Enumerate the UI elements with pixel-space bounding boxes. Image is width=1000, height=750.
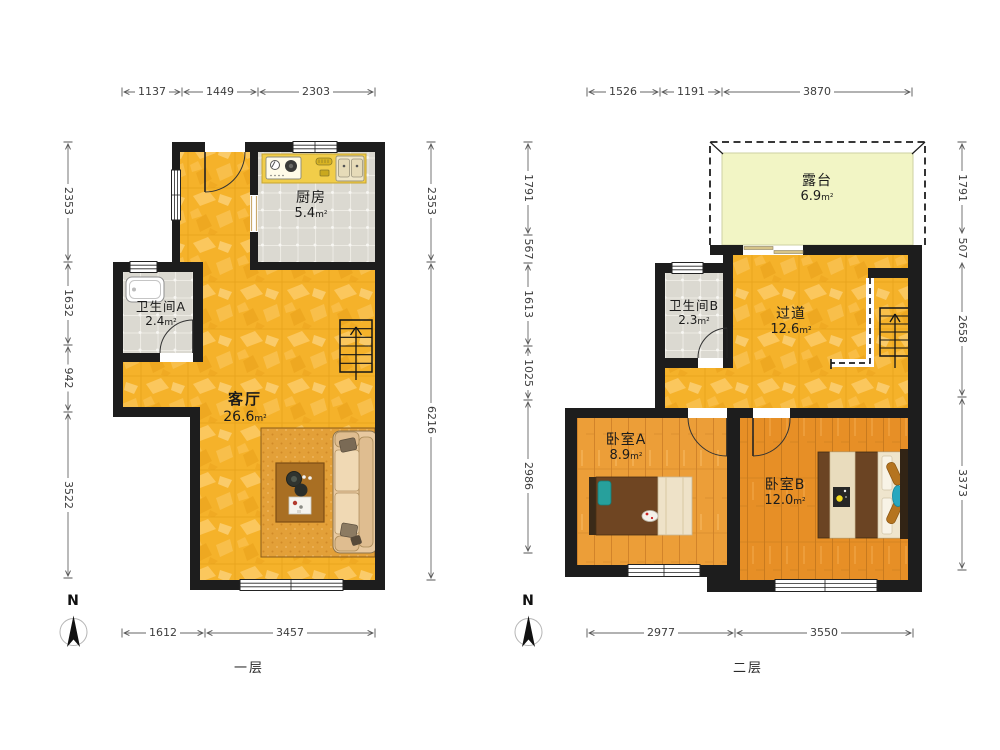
sliding-door-icon (744, 247, 803, 254)
compass-f1-n-label: N (67, 593, 79, 609)
window-icon (293, 142, 337, 153)
room-name: 卫生间A (136, 300, 186, 314)
dim-f1-top-0: 1137 (135, 86, 169, 98)
f1-kitchen-counter (262, 154, 366, 183)
room-label-bathroom-b: 卫生间B 2.3m² (669, 299, 719, 328)
room-label-living-room: 客厅 26.6m² (223, 391, 267, 425)
dim-f2-left-0: 1791 (522, 171, 534, 205)
dim-f2-right-3: 3373 (956, 466, 968, 500)
room-name: 卫生间B (669, 299, 719, 313)
floor1-plan (113, 142, 385, 591)
compass-f2-n-label: N (522, 593, 534, 609)
window-icon (130, 262, 157, 273)
room-area: 5.4m² (294, 207, 327, 222)
dim-f2-left-1: 567 (522, 236, 534, 263)
stove-icon (266, 157, 301, 179)
dim-f1-left-1: 1632 (62, 286, 74, 320)
dim-f2-top-1: 1191 (674, 86, 708, 98)
window-icon (240, 580, 343, 591)
window-icon (172, 170, 181, 220)
room-area: 8.9m² (606, 449, 647, 464)
dim-f2-right-1: 507 (956, 235, 968, 262)
dim-f2-top-0: 1526 (606, 86, 640, 98)
dim-f1-left-2: 942 (62, 365, 74, 392)
dim-f2-top-2: 3870 (800, 86, 834, 98)
dim-f2-left-4: 2986 (522, 459, 534, 493)
floor2-label: 二层 (733, 657, 763, 676)
f1-sofa (333, 431, 377, 553)
floor1-label: 一层 (234, 657, 264, 676)
dim-f1-right-1: 6216 (425, 403, 437, 437)
room-label-bathroom-a: 卫生间A 2.4m² (136, 300, 186, 329)
dim-f1-bottom-1: 3457 (273, 627, 307, 639)
dim-f1-top-2: 2303 (299, 86, 333, 98)
compass-f2-icon (515, 616, 542, 648)
dim-f1-left-3: 3522 (62, 478, 74, 512)
bedroom-b-bed (818, 449, 908, 539)
room-area: 26.6m² (223, 409, 267, 425)
dim-f1-left-0: 2353 (62, 184, 74, 218)
room-name: 客厅 (223, 391, 267, 408)
room-area: 2.3m² (669, 314, 719, 328)
room-label-terrace: 露台 6.9m² (800, 173, 833, 205)
room-label-bedroom-b: 卧室B 12.0m² (764, 477, 805, 509)
bedroom-a-bed (589, 477, 692, 535)
room-area: 12.6m² (770, 323, 811, 338)
pillow-icon (598, 481, 611, 505)
floor2-plan (565, 142, 925, 592)
room-name: 卧室A (606, 432, 647, 448)
dim-f2-left-2: 1613 (522, 287, 534, 321)
dim-f2-left-3: 1025 (522, 356, 534, 390)
dim-f2-bottom-1: 3550 (807, 627, 841, 639)
room-area: 12.0m² (764, 494, 805, 509)
room-area: 2.4m² (136, 315, 186, 329)
dim-f1-top-1: 1449 (203, 86, 237, 98)
window-icon (628, 565, 700, 577)
room-name: 露台 (800, 173, 833, 189)
dim-f2-right-2: 2658 (956, 312, 968, 346)
dim-f2-bottom-0: 2977 (644, 627, 678, 639)
room-name: 卧室B (764, 477, 805, 493)
room-name: 过道 (770, 306, 811, 322)
room-label-kitchen: 厨房 5.4m² (294, 190, 327, 222)
room-label-bedroom-a: 卧室A 8.9m² (606, 432, 647, 464)
dim-f2-right-0: 1791 (956, 171, 968, 205)
room-area: 6.9m² (800, 190, 833, 205)
compass-f1-icon (60, 616, 87, 648)
dim-f1-bottom-0: 1612 (146, 627, 180, 639)
room-name: 厨房 (294, 190, 327, 206)
window-icon (672, 263, 703, 274)
sink-icon (336, 156, 364, 181)
room-label-hallway: 过道 12.6m² (770, 306, 811, 338)
f1-coffee-table (276, 463, 324, 522)
window-icon (775, 580, 877, 592)
kitchen-door-frame (252, 196, 257, 231)
plant-pot-icon (295, 484, 308, 497)
dim-f1-right-0: 2353 (425, 184, 437, 218)
